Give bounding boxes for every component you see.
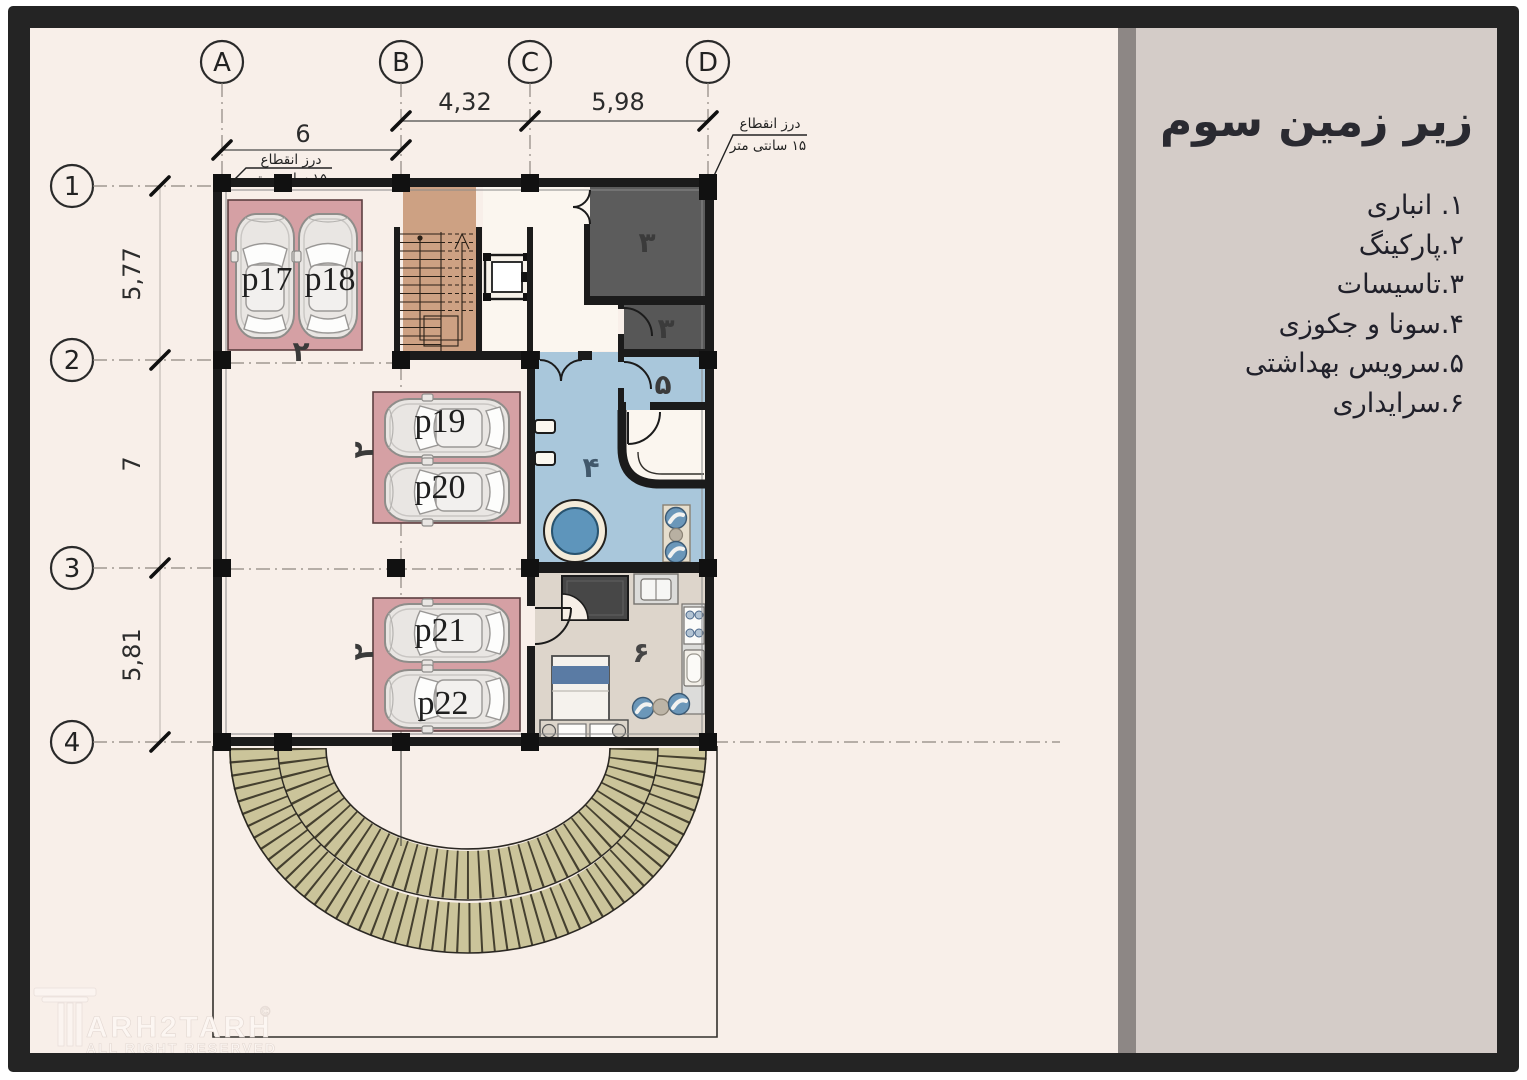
utility-sink-basin xyxy=(687,654,701,682)
legend-item-wc: ۵.سرویس بهداشتی xyxy=(1146,344,1464,384)
wall-stub xyxy=(618,388,624,402)
page: زیر زمین سوم ۱. انباری ۲.پارکینگ ۳.تاسیس… xyxy=(0,0,1527,1080)
table xyxy=(653,699,669,715)
legend-item-facilities: ۳.تاسیسات xyxy=(1146,265,1464,305)
floor-plan-drawing: A B C D 6 4,32 5,98 درز انقطاع ۱۵ سانتی … xyxy=(30,28,1118,1053)
wall-row2 xyxy=(394,351,540,360)
wall-left xyxy=(213,178,222,746)
chair xyxy=(669,694,690,715)
bed-blanket xyxy=(552,666,609,684)
chair xyxy=(633,698,654,719)
bed xyxy=(552,656,609,722)
wc-top-wall xyxy=(618,349,712,357)
grid-number-1: 1 xyxy=(64,172,81,202)
elevator-door-mark xyxy=(521,272,527,282)
parking-label-p17: p17 xyxy=(242,261,293,298)
jacuzzi-pool xyxy=(552,508,598,554)
logo-tagline: ALL RIGHT RESERVED xyxy=(86,1040,277,1053)
stair-wall-left xyxy=(394,227,400,358)
elevator-cab xyxy=(492,262,522,292)
grid-letter-a: A xyxy=(213,48,231,78)
dresser-knob xyxy=(543,725,556,738)
facilities-left-wall xyxy=(584,224,590,298)
facilities-large-label: ۳ xyxy=(638,226,655,259)
parking-label-p19: p19 xyxy=(415,403,466,440)
legend-item-parking: ۲.پارکینگ xyxy=(1146,226,1464,266)
side-table xyxy=(670,529,683,542)
logo: ARH2TARH © ALL RIGHT RESERVED xyxy=(34,988,277,1053)
shower-top-wall xyxy=(650,402,712,410)
wall-stub xyxy=(618,402,626,410)
side-panel xyxy=(1136,28,1497,1053)
stairwell-floor xyxy=(403,187,476,358)
panel-divider-bar xyxy=(1118,28,1136,1053)
corridor-wall xyxy=(527,227,533,351)
facilities-small-label: ۳ xyxy=(657,312,674,345)
grid-number-2: 2 xyxy=(64,346,81,376)
grid-letter-b: B xyxy=(392,48,410,78)
elevator xyxy=(483,253,531,301)
joint-note-text: درز انقطاع xyxy=(261,152,322,168)
elevator-jamb xyxy=(483,253,491,261)
legend-item-janitor: ۶.سرایداری xyxy=(1146,384,1464,424)
facilities-divider-wall xyxy=(584,296,712,305)
joint-note-right: درز انقطاع ۱۵ سانتی متر xyxy=(712,116,807,180)
dresser-knob xyxy=(613,725,626,738)
janitor-label: ۶ xyxy=(632,636,649,669)
wall-stub xyxy=(618,334,624,351)
dim-23: 7 xyxy=(118,456,146,471)
site xyxy=(213,746,717,1037)
sauna-label: ۴ xyxy=(582,451,599,484)
grid-letter-d: D xyxy=(698,48,718,78)
corridor-floor xyxy=(584,305,618,351)
wall-right xyxy=(705,178,714,746)
joint-note-text: درز انقطاع xyxy=(740,116,801,132)
driveway-ramp xyxy=(230,748,706,953)
room-legend: ۱. انباری ۲.پارکینگ ۳.تاسیسات ۴.سونا و ج… xyxy=(1146,186,1464,423)
legend-item-sauna: ۴.سونا و جکوزی xyxy=(1146,305,1464,345)
dim-bc: 4,32 xyxy=(438,88,491,116)
grid-number-3: 3 xyxy=(64,554,81,584)
shower-room xyxy=(624,410,705,484)
janitor-left-wall xyxy=(527,646,535,742)
parking-zone-label: ۲ xyxy=(292,335,309,368)
massage-bench xyxy=(663,505,690,563)
logo-copyright: © xyxy=(260,1003,271,1019)
building: p17 p18 p19 p20 p21 p22 ۲ ۲ ۲ ۳ ۳ ۵ ۴ ۶ xyxy=(213,174,717,751)
wall-stub xyxy=(618,305,624,309)
burner xyxy=(686,629,694,637)
sauna-heater xyxy=(535,420,555,433)
parking-zone-label: ۲ xyxy=(347,643,380,660)
dim-cd: 5,98 xyxy=(591,88,644,116)
janitor-top-wall xyxy=(527,562,712,573)
parking-label-p22: p22 xyxy=(418,685,469,722)
grid-letter-c: C xyxy=(521,48,539,78)
stair-wall-right xyxy=(476,227,482,358)
stool xyxy=(666,508,687,529)
parking-zone-label: ۲ xyxy=(347,441,380,458)
grid-number-4: 4 xyxy=(64,728,81,758)
wall-row2 xyxy=(578,351,592,360)
parking-label-p21: p21 xyxy=(415,612,466,649)
wc-label: ۵ xyxy=(654,368,671,401)
floor-title: زیر زمین سوم xyxy=(1146,96,1487,147)
parking-label-p20: p20 xyxy=(415,469,466,506)
dim-ab: 6 xyxy=(295,120,310,148)
parking-label-p18: p18 xyxy=(305,261,356,298)
dim-12: 5,77 xyxy=(118,247,146,300)
stool xyxy=(666,542,687,563)
burner xyxy=(686,611,694,619)
sauna-heater xyxy=(535,452,555,465)
legend-item-storage: ۱. انباری xyxy=(1146,186,1464,226)
elevator-jamb xyxy=(483,293,491,301)
joint-note-size: ۱۵ سانتی متر xyxy=(729,138,806,154)
dim-34: 5,81 xyxy=(118,628,146,681)
dresser-drawer xyxy=(558,724,586,738)
wall-stub xyxy=(618,357,624,362)
